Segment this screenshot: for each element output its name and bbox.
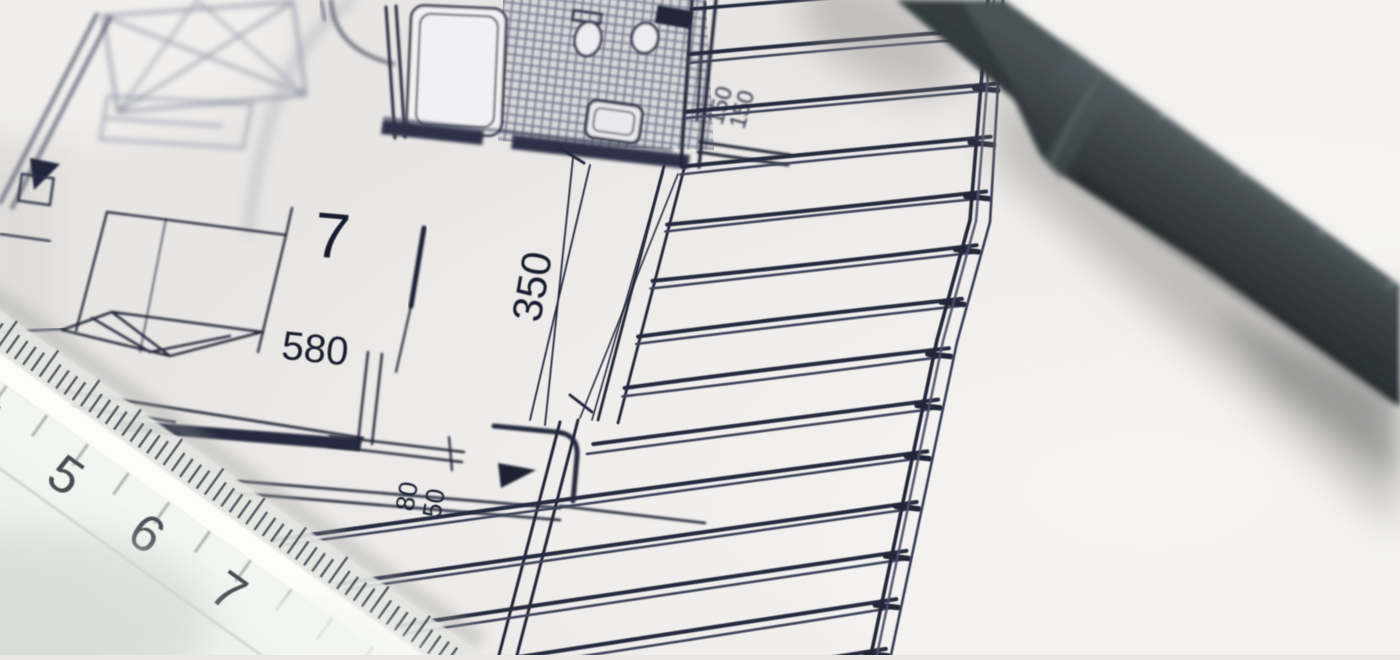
svg-text:580: 580 — [280, 324, 351, 375]
svg-text:7: 7 — [311, 199, 353, 274]
